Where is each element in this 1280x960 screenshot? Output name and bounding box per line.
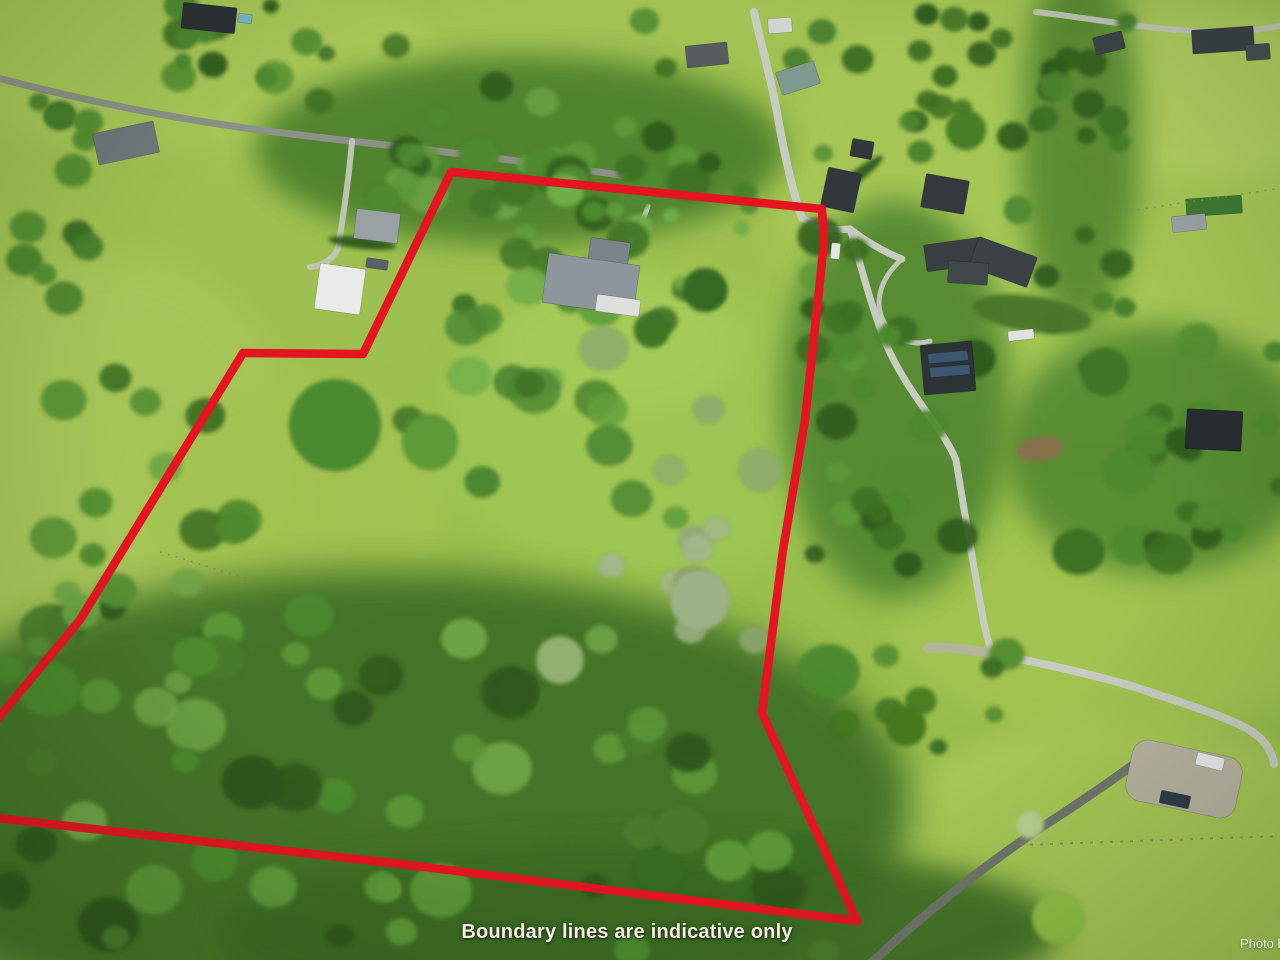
tree <box>798 644 860 698</box>
tree <box>587 392 628 428</box>
tree <box>1114 298 1136 317</box>
tree <box>358 656 403 696</box>
tree <box>500 238 536 269</box>
tree <box>908 141 934 164</box>
tree <box>1053 529 1105 574</box>
tree <box>1039 71 1072 100</box>
tree <box>222 756 283 809</box>
tree <box>386 918 417 946</box>
house-left-grey <box>353 208 400 243</box>
tree <box>452 733 485 762</box>
tree <box>215 512 251 544</box>
tree <box>830 710 859 736</box>
tree <box>327 924 354 948</box>
tree <box>445 308 487 345</box>
tree <box>41 380 87 420</box>
dead-tree <box>670 570 730 630</box>
tree <box>653 455 687 485</box>
pool-top-far-left <box>238 13 253 23</box>
tree <box>395 170 418 191</box>
house-right-edge <box>1245 43 1270 61</box>
tree <box>515 372 544 397</box>
pale-tree <box>1016 811 1044 839</box>
tree <box>634 312 670 348</box>
big-tree-paddock <box>289 379 381 471</box>
tree <box>16 826 57 862</box>
tree <box>842 238 869 262</box>
tree <box>873 644 899 667</box>
aerial-photo: Boundary lines are indicative only Photo… <box>0 0 1280 960</box>
tree <box>642 122 675 151</box>
tree <box>263 0 279 13</box>
tree <box>29 93 49 111</box>
barn-dark-b <box>920 173 969 214</box>
tree <box>663 506 689 529</box>
tree <box>808 19 836 44</box>
tree <box>886 706 926 746</box>
tree <box>1178 323 1218 358</box>
tree <box>840 302 863 322</box>
garden-pen-right <box>1185 195 1242 217</box>
tree <box>605 202 625 220</box>
tree <box>805 545 825 563</box>
tree <box>666 733 710 772</box>
shed-road-small <box>850 138 875 160</box>
tree <box>1004 196 1032 224</box>
tree <box>703 517 731 541</box>
tree <box>402 414 458 470</box>
forest-top-center-base <box>255 55 785 245</box>
tree <box>249 866 297 908</box>
tree <box>256 68 277 86</box>
tree <box>26 635 50 656</box>
tree <box>586 425 632 466</box>
tree <box>937 519 977 554</box>
tree <box>930 739 948 755</box>
tree <box>171 636 219 678</box>
tree <box>698 153 720 173</box>
tree <box>1117 13 1137 31</box>
tree <box>911 410 947 442</box>
tree <box>663 208 680 223</box>
tree <box>282 642 311 667</box>
tree <box>305 89 334 114</box>
shed-grey-right <box>1171 213 1206 232</box>
tree <box>306 668 343 700</box>
tree <box>427 107 452 129</box>
tree <box>171 748 199 773</box>
tree <box>579 326 629 370</box>
photo-credit: Photo by <box>1240 936 1280 951</box>
tree <box>990 29 1012 49</box>
tree <box>830 334 861 361</box>
house-right-center <box>947 261 988 286</box>
tree <box>45 103 75 129</box>
tree <box>382 34 410 58</box>
tree <box>396 142 425 167</box>
tree <box>72 233 104 261</box>
tree <box>932 65 957 87</box>
house-topright-small <box>685 42 729 68</box>
tree <box>825 461 850 483</box>
tree <box>1255 413 1279 434</box>
tree <box>1101 250 1133 278</box>
tree <box>814 145 833 162</box>
tree <box>79 488 112 517</box>
tree <box>598 553 626 578</box>
bright-tree <box>1032 892 1084 944</box>
tree <box>441 618 488 659</box>
tree <box>470 189 502 217</box>
tree <box>582 201 606 222</box>
scene-svg <box>0 0 1280 960</box>
tree <box>705 840 752 881</box>
tree <box>852 380 874 399</box>
tree <box>927 95 954 119</box>
tree <box>62 801 107 841</box>
tree <box>102 925 130 949</box>
tree <box>683 268 727 312</box>
tree <box>873 522 905 550</box>
tree <box>654 806 709 855</box>
tree <box>334 691 373 725</box>
tree <box>997 122 1029 150</box>
tree <box>465 466 500 497</box>
tree <box>45 282 83 315</box>
tree <box>968 41 997 66</box>
tree <box>171 569 203 597</box>
house-left-white <box>314 263 366 315</box>
tree <box>448 357 492 395</box>
car-white-road <box>830 243 840 260</box>
tree <box>26 748 58 776</box>
tree <box>616 155 647 182</box>
tree <box>364 871 399 902</box>
tree <box>908 40 932 61</box>
tree <box>968 12 990 31</box>
tree <box>134 687 179 727</box>
tree <box>981 658 1004 678</box>
tree <box>386 795 424 829</box>
tree <box>1192 503 1224 531</box>
tree <box>30 517 77 558</box>
house-topright-large <box>1191 26 1255 54</box>
tree <box>940 7 968 32</box>
tree <box>746 831 793 872</box>
tree <box>734 221 750 235</box>
tree <box>482 666 541 718</box>
shed-right-mid <box>1185 409 1243 452</box>
tree <box>899 112 920 131</box>
tree <box>1093 292 1115 311</box>
tree <box>291 28 322 55</box>
tree <box>894 552 922 577</box>
tree <box>198 52 227 78</box>
tree <box>1034 265 1059 287</box>
tree <box>739 626 770 654</box>
tree <box>851 488 883 516</box>
tree <box>99 364 131 392</box>
tree <box>10 211 46 243</box>
tree <box>693 395 725 423</box>
tree <box>32 263 56 284</box>
tree <box>283 593 333 637</box>
boundary-disclaimer: Boundary lines are indicative only <box>461 921 792 944</box>
tree <box>1077 127 1096 144</box>
tree <box>946 110 986 150</box>
tree <box>525 87 559 117</box>
tree <box>130 388 161 415</box>
greenhouse <box>768 17 793 34</box>
house-top-far-left <box>181 2 237 34</box>
tree <box>655 58 677 77</box>
tree <box>80 543 106 566</box>
tree <box>585 625 618 654</box>
tree <box>175 53 192 68</box>
tree <box>55 154 92 187</box>
tree <box>1031 106 1059 130</box>
pale-tree <box>738 448 782 492</box>
tree <box>459 137 500 173</box>
tree <box>1075 226 1095 243</box>
tree <box>1081 348 1129 396</box>
tree <box>627 707 667 742</box>
tree <box>1146 533 1192 574</box>
tree <box>876 325 901 347</box>
tree <box>480 72 513 101</box>
lone-tree-hill <box>1098 106 1128 136</box>
tree <box>74 109 103 135</box>
tree <box>366 184 400 214</box>
tree <box>611 480 653 517</box>
tree <box>1103 448 1154 493</box>
tree <box>816 403 857 439</box>
tree <box>126 865 183 915</box>
tree <box>915 4 939 25</box>
pale-tree <box>536 636 584 684</box>
tree <box>630 8 659 34</box>
tree <box>985 707 1003 723</box>
tree <box>613 116 637 137</box>
tree <box>80 679 120 714</box>
tree <box>842 45 874 73</box>
